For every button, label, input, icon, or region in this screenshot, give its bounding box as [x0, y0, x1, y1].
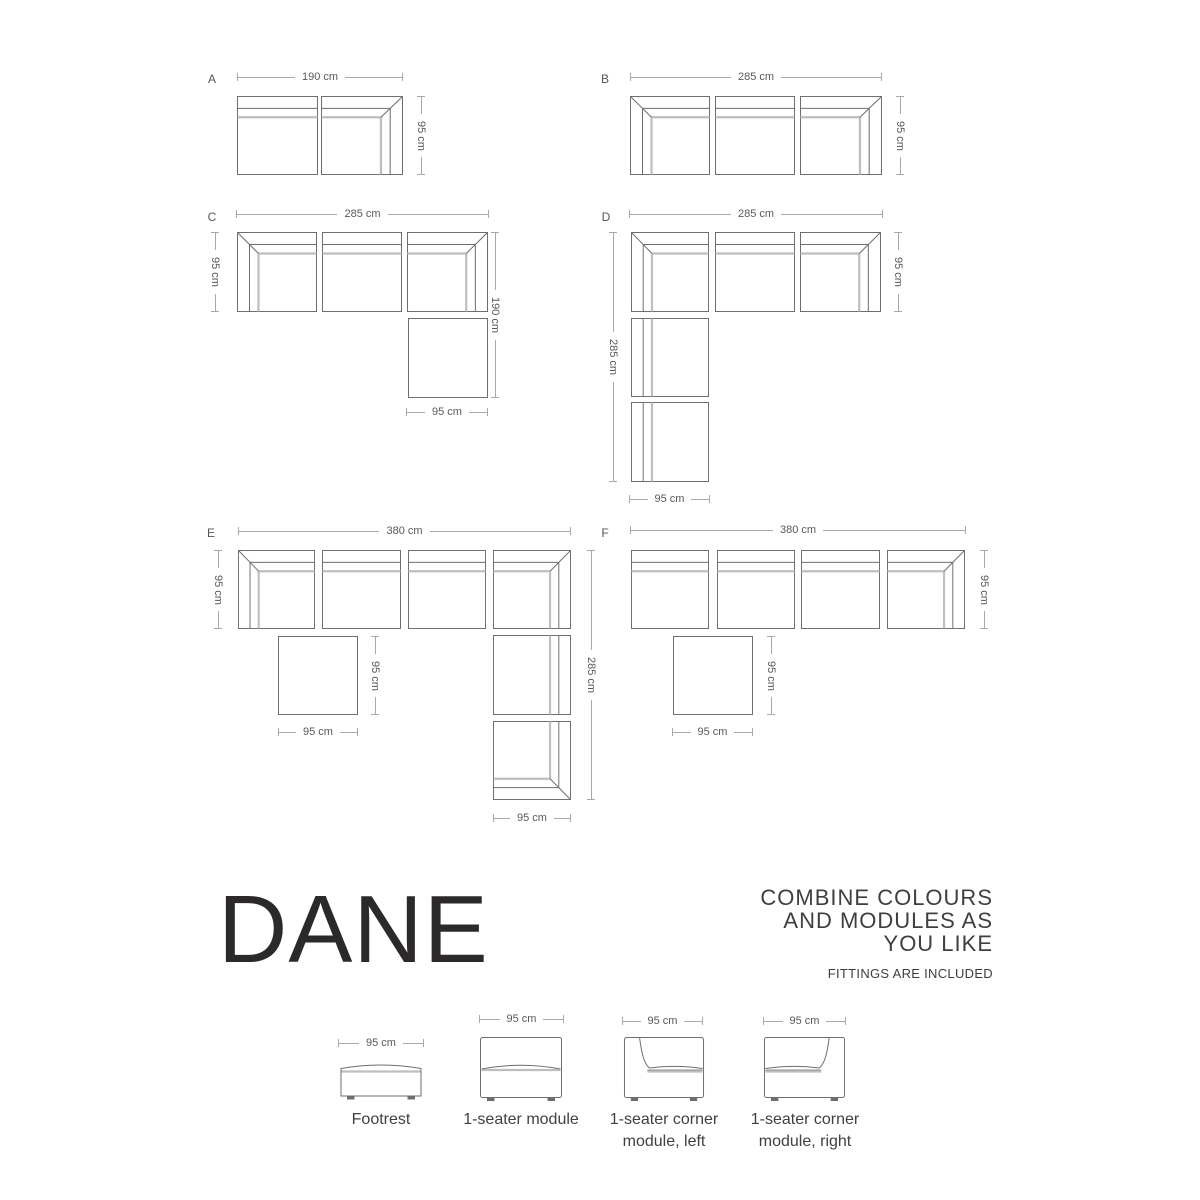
corner-left-width-dimension: 95 cm — [622, 1015, 703, 1027]
dimension-value: 95 cm — [500, 1013, 544, 1025]
dimension-line — [403, 1043, 423, 1044]
dimension-tick — [702, 1017, 703, 1025]
dimension-line — [764, 1021, 783, 1022]
catalog-label-line: module, left — [594, 1131, 734, 1153]
footrest-width-dimension: 95 cm — [338, 1037, 424, 1049]
dimension-tick — [845, 1017, 846, 1025]
catalog-label-line: 1-seater corner — [735, 1109, 875, 1131]
dimension-line — [623, 1021, 641, 1022]
corner-right-label: 1-seater corner module, right — [735, 1109, 875, 1152]
footrest-illustration — [339, 1058, 423, 1102]
catalog-label-line: module, right — [735, 1131, 875, 1153]
dimension-value: 95 cm — [359, 1037, 403, 1049]
dimension-value: 95 cm — [641, 1015, 685, 1027]
one-seater-illustration — [479, 1036, 563, 1103]
dimension-line — [543, 1019, 563, 1020]
catalog-label-line: Footrest — [321, 1109, 441, 1131]
dimension-line — [339, 1043, 359, 1044]
spec-sheet: A 190 cm 95 cm B 285 cm 95 cm C 285 cm 9… — [0, 0, 1200, 1200]
catalog-label-line: 1-seater module — [451, 1109, 591, 1131]
corner-left-illustration — [623, 1036, 705, 1103]
dimension-line — [826, 1021, 845, 1022]
dimension-tick — [423, 1039, 424, 1047]
corner-right-width-dimension: 95 cm — [763, 1015, 846, 1027]
dimension-tick — [563, 1015, 564, 1023]
one-seater-label: 1-seater module — [451, 1109, 591, 1131]
module-catalog: 95 cm Footrest 95 cm 1-seater module 95 … — [0, 0, 1200, 1200]
seater-width-dimension: 95 cm — [479, 1013, 564, 1025]
footrest-label: Footrest — [321, 1109, 441, 1131]
dimension-line — [480, 1019, 500, 1020]
corner-left-label: 1-seater corner module, left — [594, 1109, 734, 1152]
dimension-line — [684, 1021, 702, 1022]
catalog-label-line: 1-seater corner — [594, 1109, 734, 1131]
dimension-value: 95 cm — [783, 1015, 827, 1027]
corner-right-illustration — [763, 1036, 846, 1103]
